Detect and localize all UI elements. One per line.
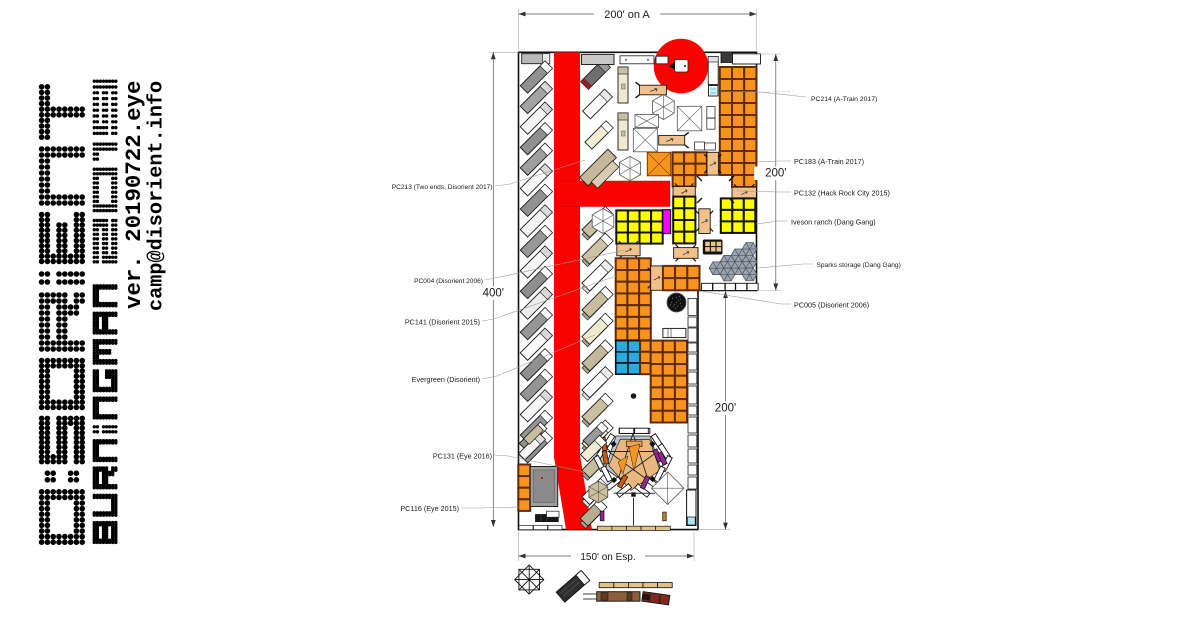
svg-text:PC005 (Disorient 2006): PC005 (Disorient 2006) [794,301,869,310]
svg-text:200' on A: 200' on A [604,9,650,21]
svg-text:PC132 (Hack Rock City 2015): PC132 (Hack Rock City 2015) [794,189,890,198]
svg-text:PC183 (A-Train 2017): PC183 (A-Train 2017) [794,157,864,166]
svg-text:PC141 (Disorient 2015): PC141 (Disorient 2015) [405,318,480,327]
svg-text:150' on Esp.: 150' on Esp. [580,552,635,563]
svg-text:Iveson ranch (Dang Gang): Iveson ranch (Dang Gang) [791,218,876,227]
svg-text:PC213 (Two ends, Disorient 201: PC213 (Two ends, Disorient 2017) [392,184,493,191]
svg-text:200': 200' [765,168,786,180]
svg-text:ver. 20190722.eye: ver. 20190722.eye [121,81,147,309]
svg-text:PC116 (Eye 2015): PC116 (Eye 2015) [400,504,459,513]
svg-text:PC214 (A-Train 2017): PC214 (A-Train 2017) [811,96,877,103]
svg-text:PC004 (Disorient 2006): PC004 (Disorient 2006) [414,278,483,285]
svg-text:PC131 (Eye 2016): PC131 (Eye 2016) [433,452,492,461]
svg-text:Sparks storage (Dang Gang): Sparks storage (Dang Gang) [817,262,901,269]
svg-text:Evergreen (Disorient): Evergreen (Disorient) [412,375,480,384]
svg-text:200': 200' [715,403,736,415]
svg-text:400': 400' [483,288,504,300]
svg-text:camp@disorient.info: camp@disorient.info [146,81,169,311]
